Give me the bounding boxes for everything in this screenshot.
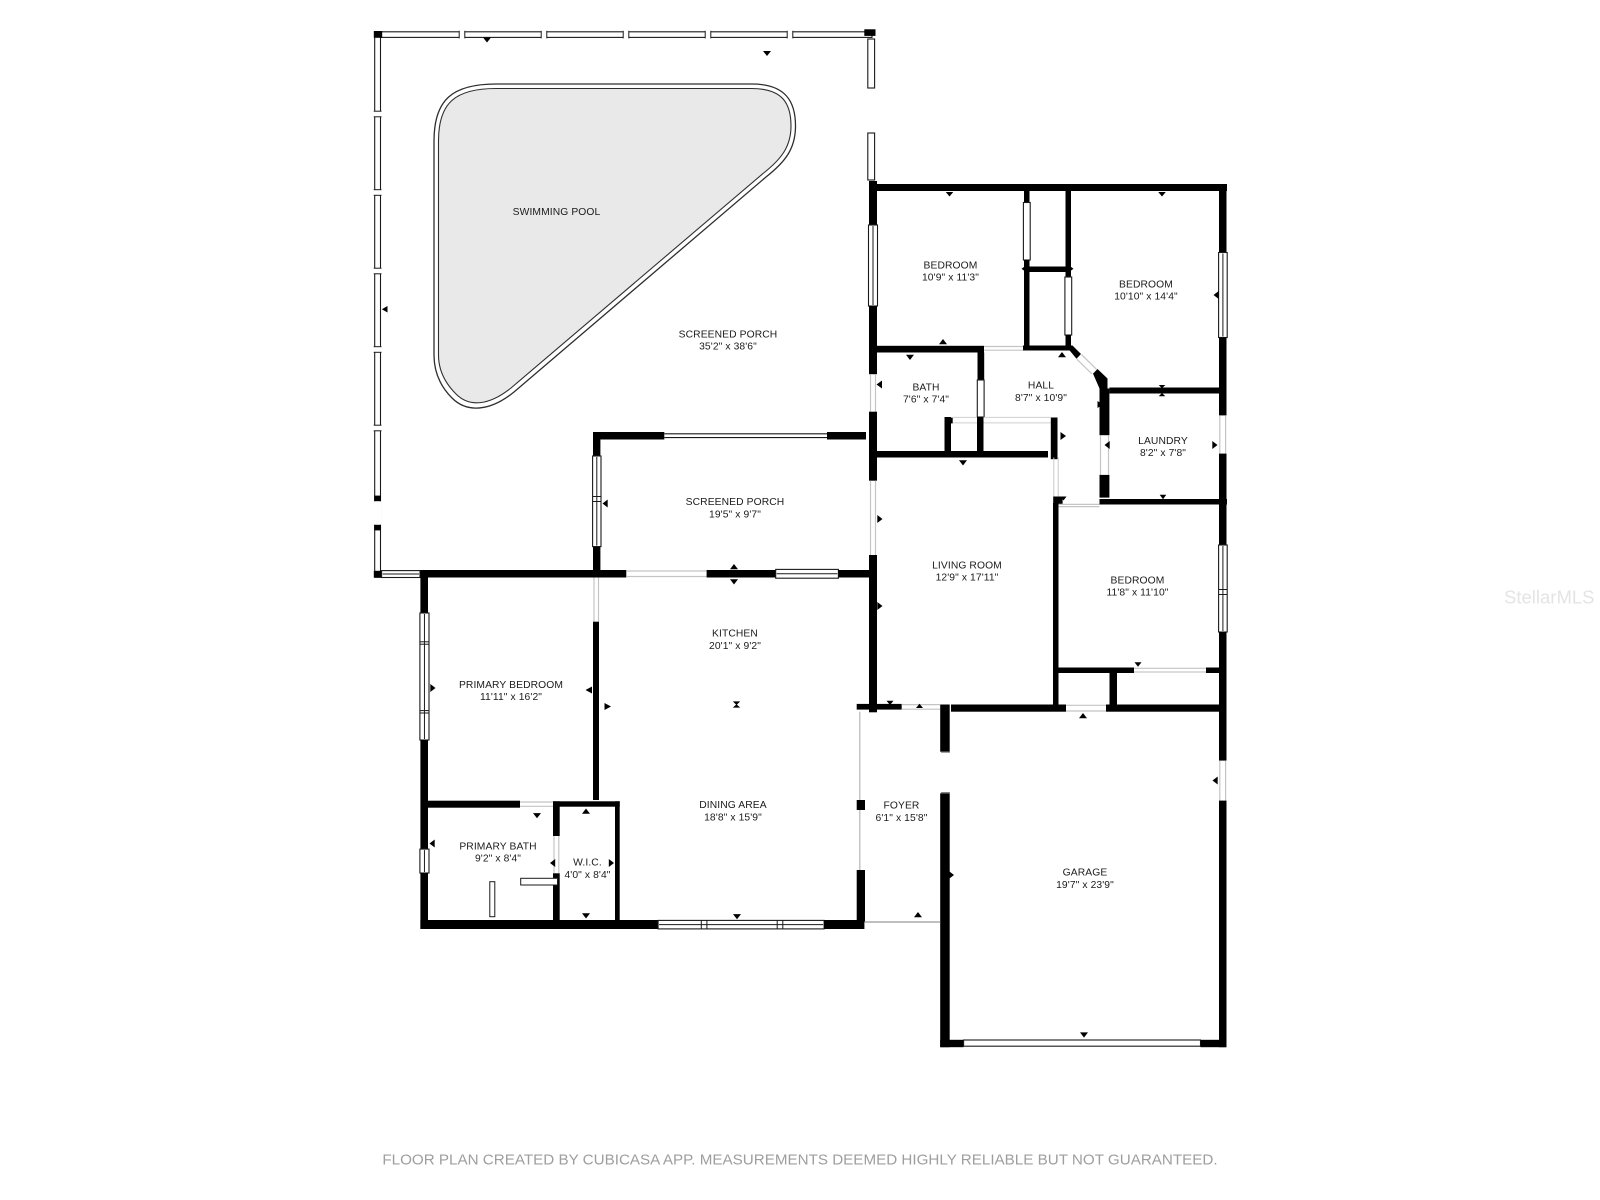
svg-text:DINING AREA: DINING AREA xyxy=(699,800,767,811)
svg-text:11'8" x 11'10": 11'8" x 11'10" xyxy=(1106,588,1168,599)
svg-text:6'1" x 15'8": 6'1" x 15'8" xyxy=(876,813,928,824)
svg-text:FOYER: FOYER xyxy=(884,801,920,812)
svg-text:HALL: HALL xyxy=(1028,381,1054,392)
svg-text:StellarMLS: StellarMLS xyxy=(1504,587,1594,608)
svg-text:20'1" x 9'2": 20'1" x 9'2" xyxy=(709,641,761,652)
svg-text:PRIMARY BEDROOM: PRIMARY BEDROOM xyxy=(459,680,563,691)
svg-text:12'9" x 17'11": 12'9" x 17'11" xyxy=(936,573,999,584)
svg-text:GARAGE: GARAGE xyxy=(1063,868,1108,879)
svg-text:W.I.C.: W.I.C. xyxy=(573,858,602,869)
svg-text:10'10" x 14'4": 10'10" x 14'4" xyxy=(1114,292,1178,303)
svg-text:8'7" x 10'9": 8'7" x 10'9" xyxy=(1015,393,1067,404)
svg-text:35'2" x 38'6": 35'2" x 38'6" xyxy=(699,342,757,353)
svg-text:18'8" x 15'9": 18'8" x 15'9" xyxy=(704,812,762,823)
svg-text:BEDROOM: BEDROOM xyxy=(1111,576,1165,587)
svg-text:BEDROOM: BEDROOM xyxy=(924,260,978,271)
svg-text:9'2" x 8'4": 9'2" x 8'4" xyxy=(475,854,521,865)
svg-text:8'2" x 7'8": 8'2" x 7'8" xyxy=(1140,448,1186,459)
svg-text:10'9" x 11'3": 10'9" x 11'3" xyxy=(922,273,979,284)
svg-text:BATH: BATH xyxy=(912,382,939,393)
svg-text:BEDROOM: BEDROOM xyxy=(1119,279,1173,290)
svg-text:19'5" x 9'7": 19'5" x 9'7" xyxy=(709,509,761,520)
svg-text:FLOOR PLAN CREATED BY CUBICASA: FLOOR PLAN CREATED BY CUBICASA APP. MEAS… xyxy=(382,1152,1217,1169)
svg-text:SCREENED PORCH: SCREENED PORCH xyxy=(679,330,778,341)
svg-text:SCREENED PORCH: SCREENED PORCH xyxy=(686,497,785,508)
svg-text:7'6" x 7'4": 7'6" x 7'4" xyxy=(903,395,949,406)
svg-text:19'7" x 23'9": 19'7" x 23'9" xyxy=(1056,880,1114,891)
svg-text:SWIMMING POOL: SWIMMING POOL xyxy=(513,207,601,218)
svg-text:LAUNDRY: LAUNDRY xyxy=(1138,436,1188,447)
svg-text:11'11" x 16'2": 11'11" x 16'2" xyxy=(480,692,542,703)
svg-text:KITCHEN: KITCHEN xyxy=(712,629,758,640)
svg-text:PRIMARY BATH: PRIMARY BATH xyxy=(459,841,536,852)
svg-text:LIVING ROOM: LIVING ROOM xyxy=(932,560,1002,571)
svg-text:4'0" x 8'4": 4'0" x 8'4" xyxy=(564,870,610,881)
